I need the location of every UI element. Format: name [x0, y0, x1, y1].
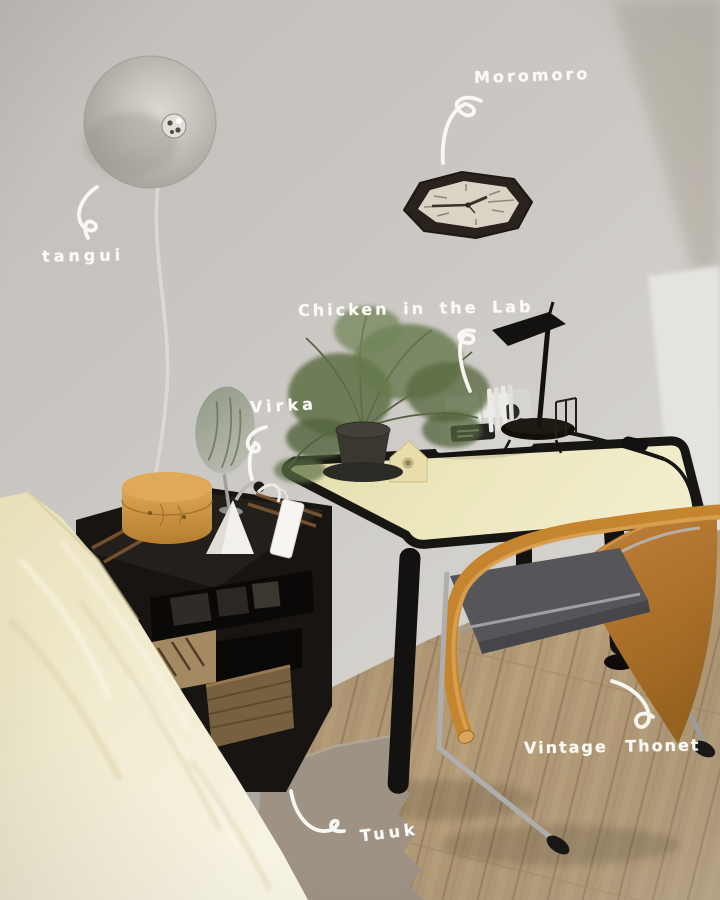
label-vintage-thonet: Vintage Thonet — [524, 735, 701, 757]
label-moromoro: Moromoro — [474, 64, 591, 87]
room-photo: tangui Moromoro Chicken in the Lab Virka… — [0, 0, 720, 900]
room-scene — [0, 0, 720, 900]
label-virka: Virka — [250, 394, 318, 416]
vignette — [0, 0, 720, 900]
label-tangui: tangui — [42, 245, 124, 265]
